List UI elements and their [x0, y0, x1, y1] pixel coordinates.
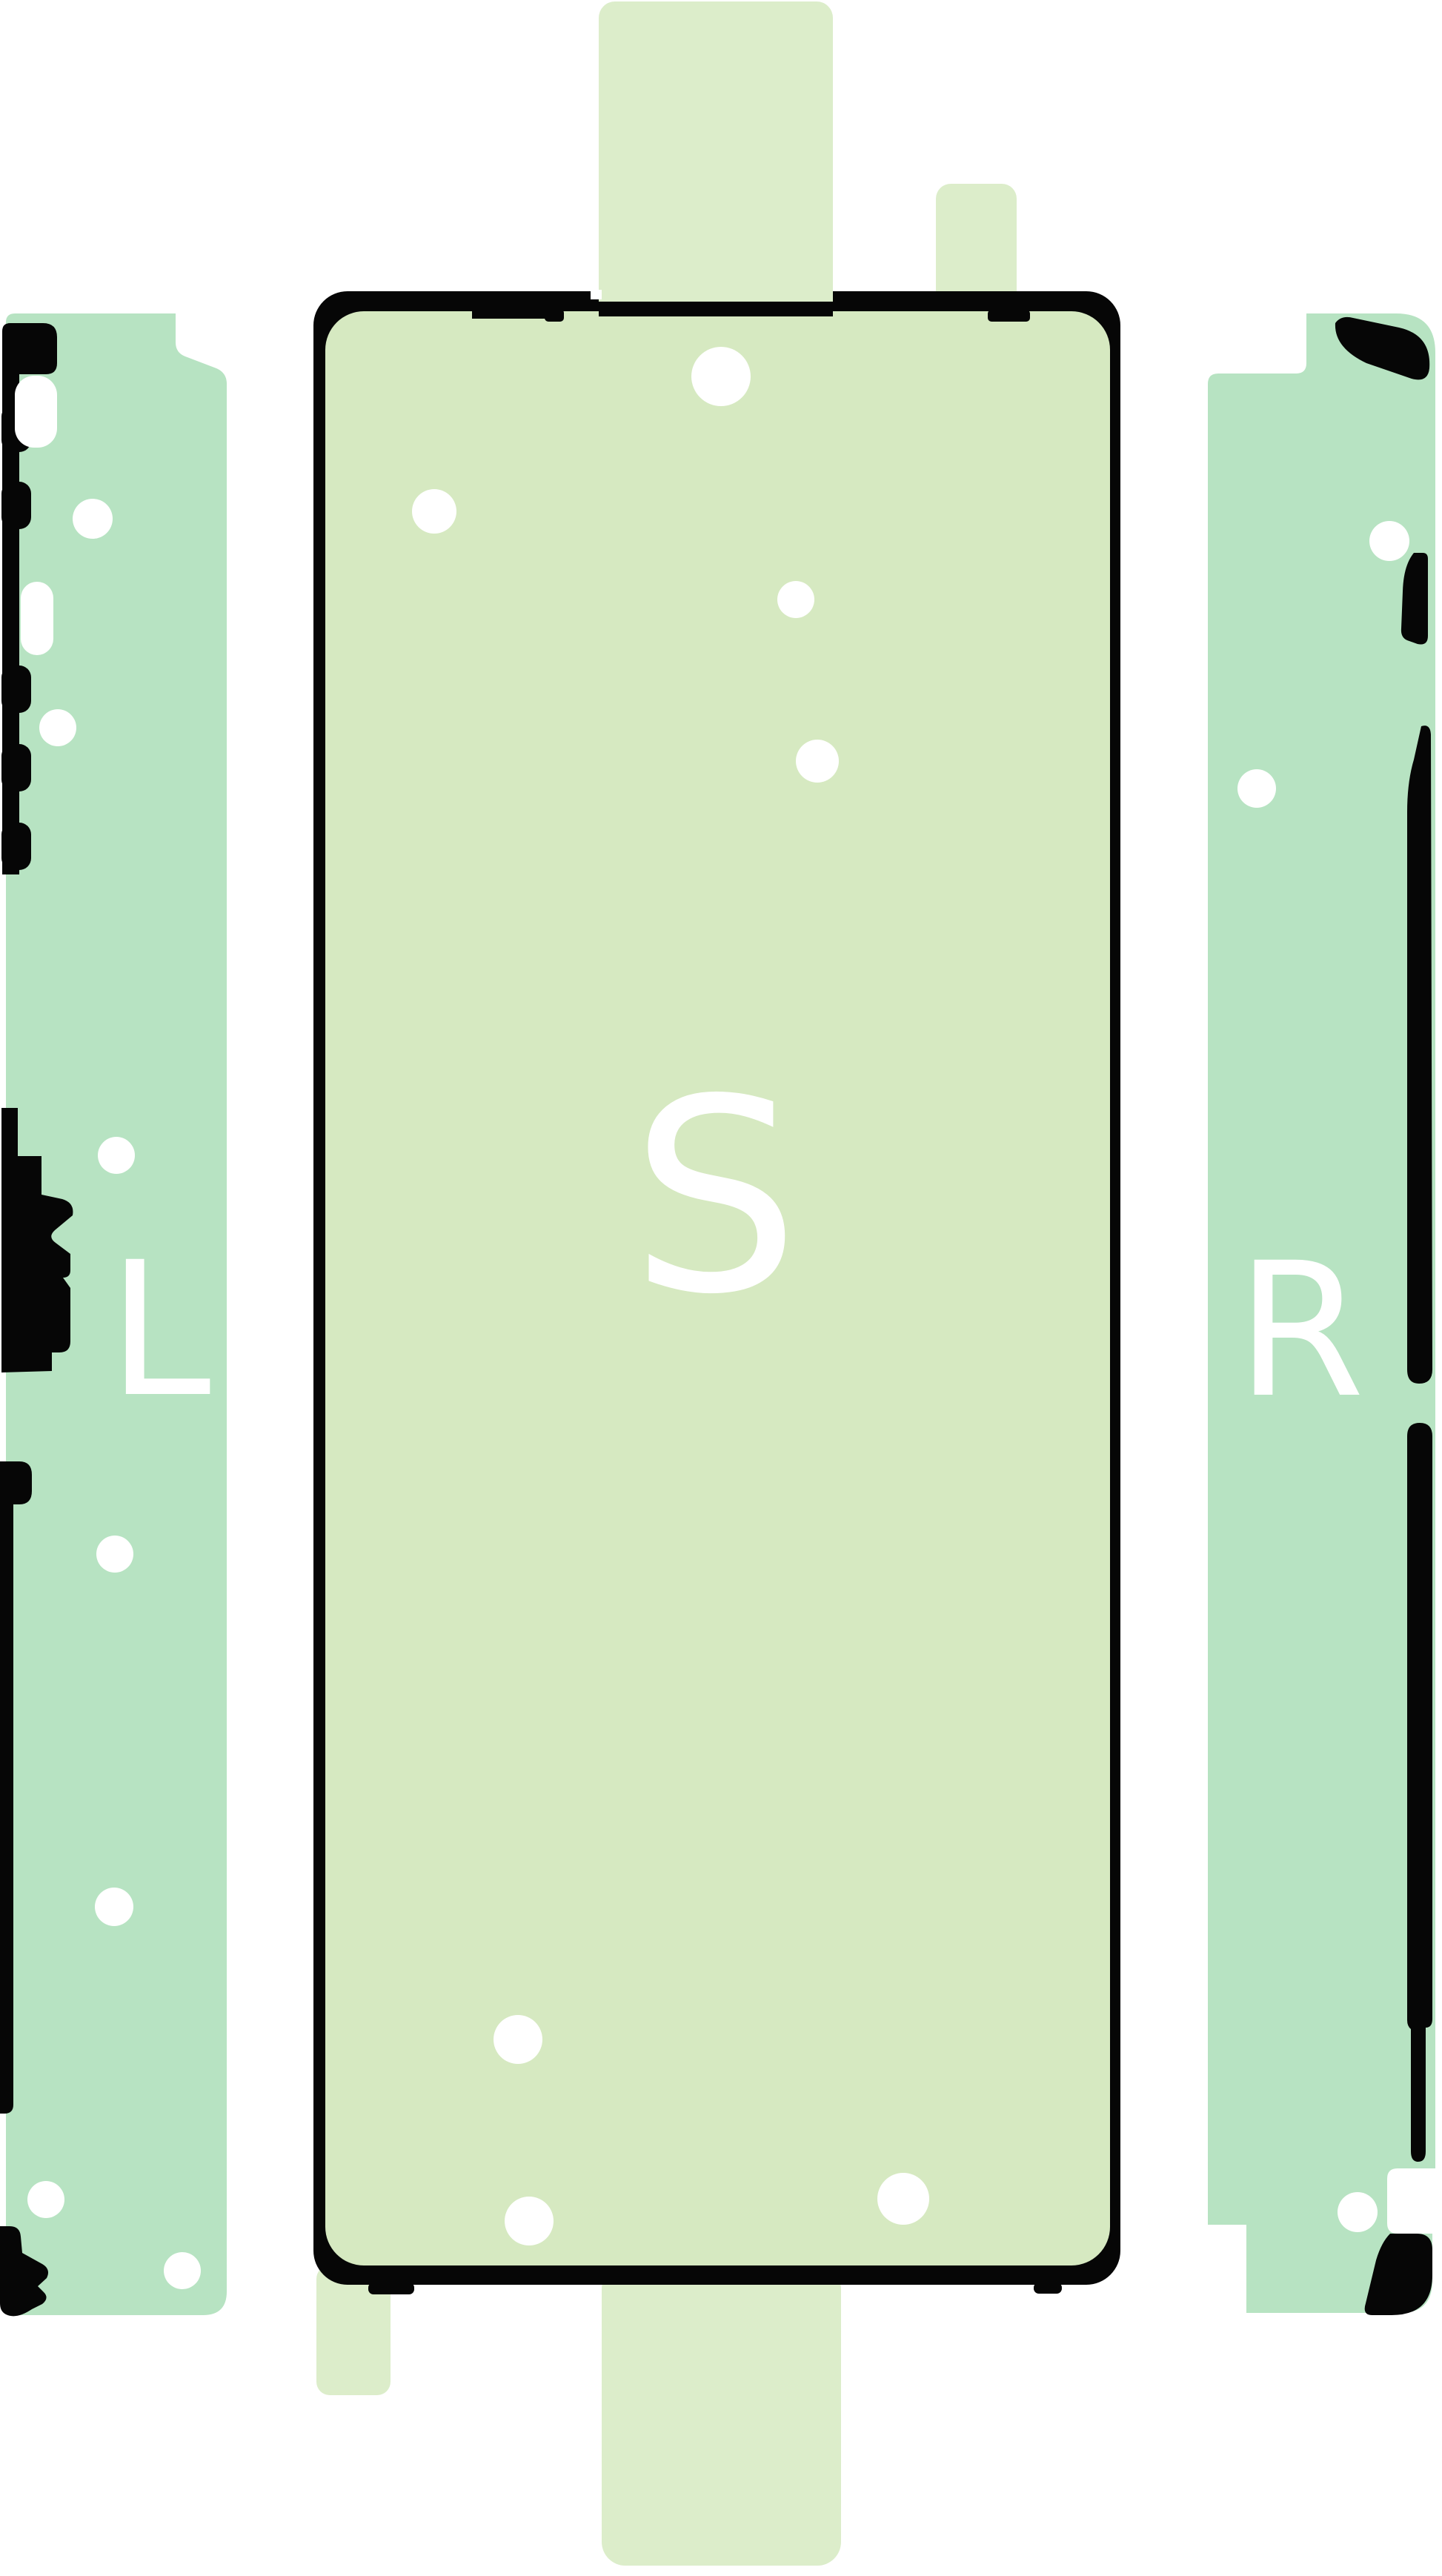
adhesive-kit-sheet: S — [0, 0, 1442, 2576]
adhesive-hole — [95, 1888, 133, 1926]
left-label-group: L — [107, 1222, 210, 1438]
backing-tab-top — [599, 1, 833, 311]
right-rail-adhesive: R — [1208, 313, 1435, 2315]
right-label-group: R — [1236, 1223, 1365, 1438]
bottom-band-nub — [368, 2283, 414, 2294]
band-under-tab — [599, 302, 833, 316]
label-screen: S — [631, 1042, 800, 1352]
screen-label-group: S — [631, 1042, 800, 1352]
band-notch — [472, 309, 546, 319]
right-rail-edge-bar-upper — [1407, 726, 1432, 1384]
left-rail-top-blob — [2, 323, 57, 374]
label-right: R — [1236, 1223, 1365, 1438]
edge-bar-scallop — [1, 665, 31, 713]
adhesive-hole — [412, 489, 456, 534]
backing-tab-bottom — [602, 2265, 841, 2566]
adhesive-hole — [1237, 769, 1276, 808]
adhesive-hole — [164, 2252, 201, 2289]
left-rail-adhesive: L — [0, 313, 227, 2316]
adhesive-hole — [96, 1536, 133, 1573]
adhesive-slot — [21, 582, 53, 655]
adhesive-hole — [691, 347, 751, 406]
label-left: L — [107, 1222, 210, 1438]
adhesive-hole — [796, 740, 839, 783]
adhesive-hole — [98, 1137, 135, 1174]
band-nub — [988, 310, 1030, 322]
screen-adhesive-sticker: S — [313, 290, 1120, 2294]
edge-bar-scallop — [1, 744, 31, 791]
adhesive-hole — [505, 2197, 554, 2245]
bottom-band-nub — [1034, 2283, 1062, 2294]
tab-over-band — [599, 290, 833, 302]
adhesive-hole — [777, 581, 814, 618]
band-top-notch — [591, 290, 602, 299]
adhesive-hole — [1338, 2192, 1378, 2232]
edge-bar-scallop — [1, 823, 31, 870]
edge-bar-scallop — [1, 482, 31, 529]
adhesive-slot — [15, 376, 57, 448]
adhesive-hole — [877, 2173, 929, 2225]
adhesive-hole — [73, 499, 113, 539]
band-nub — [545, 309, 564, 322]
adhesive-hole — [39, 709, 76, 746]
adhesive-hole — [494, 2015, 542, 2064]
adhesive-hole — [1369, 521, 1409, 561]
adhesive-hole — [27, 2181, 64, 2218]
adhesive-kit-diagram: S — [0, 0, 1442, 2576]
